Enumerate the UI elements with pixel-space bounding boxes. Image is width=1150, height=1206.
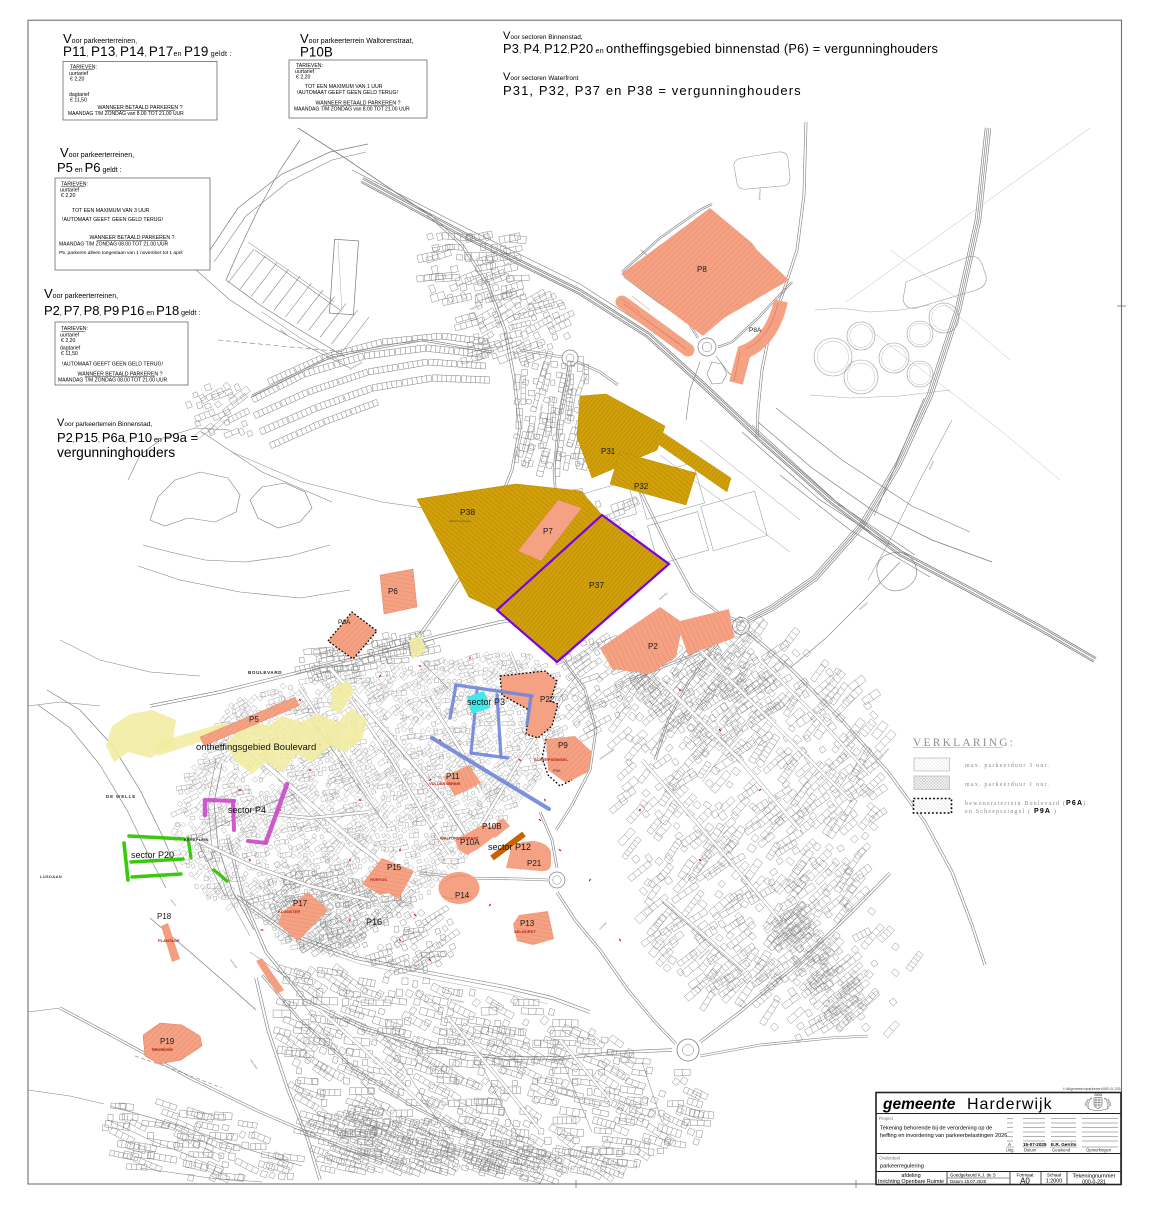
svg-text:P8: P8 <box>697 265 707 274</box>
svg-text:en Scheepssingel ( P9A ): en Scheepssingel ( P9A ) <box>965 808 1057 815</box>
svg-text:P16: P16 <box>366 917 382 927</box>
svg-text:€ 2,20: € 2,20 <box>70 77 85 83</box>
svg-text:P31: P31 <box>601 447 616 456</box>
svg-text:sector P20: sector P20 <box>131 850 174 860</box>
svg-text:P10B: P10B <box>300 45 333 60</box>
svg-text:LUSDAAN: LUSDAAN <box>40 875 62 879</box>
svg-text:P5: P5 <box>249 715 259 724</box>
svg-text:MAANDAG T/M ZONDAG van 8.00 TO: MAANDAG T/M ZONDAG van 8.00 TOT 21.00 UU… <box>294 107 410 113</box>
svg-text:TOT EEN MAXIMUM VAN 3 UUR: TOT EEN MAXIMUM VAN 3 UUR <box>72 208 150 214</box>
svg-text:P31, P32, P37 en P38 = vergun: P31, P32, P37 en P38 = vergunninghouders <box>503 83 802 98</box>
svg-text:ontheffingsgebied Boulevard: ontheffingsgebied Boulevard <box>196 742 316 753</box>
svg-text:sector P4: sector P4 <box>228 805 266 815</box>
svg-text:P11: P11 <box>446 772 460 781</box>
svg-text:parkeerregulering: parkeerregulering <box>880 1164 924 1170</box>
svg-text:Schaal: Schaal <box>1047 1173 1061 1178</box>
svg-text:!AUTOMAAT GEEFT GEEN GELD TERU: !AUTOMAAT GEEFT GEEN GELD TERUG! <box>297 90 398 96</box>
svg-text:000-0-231: 000-0-231 <box>1082 1180 1106 1186</box>
svg-text:SELHORST: SELHORST <box>514 929 536 934</box>
svg-text:Project: Project <box>879 1116 894 1121</box>
svg-text:WALTORENSTRAAT: WALTORENSTRAAT <box>440 836 479 841</box>
svg-text:€ 2,20: € 2,20 <box>61 338 76 344</box>
svg-text:SCHEEPSSINGEL: SCHEEPSSINGEL <box>534 757 569 762</box>
svg-text:Onderdeel: Onderdeel <box>879 1156 900 1161</box>
svg-text:Waterfrontgarage: Waterfrontgarage <box>449 519 471 523</box>
svg-text:P9: P9 <box>558 741 568 750</box>
svg-text:P17: P17 <box>293 899 308 908</box>
svg-text:Tekening behorende bij de vero: Tekening behorende bij de verordening op… <box>880 1126 992 1132</box>
svg-text:P21: P21 <box>527 859 542 868</box>
svg-text:P38: P38 <box>460 507 475 517</box>
svg-text:MAANDAG T/M ZONDAG 08.00 TOT: MAANDAG T/M ZONDAG 08.00 TOT 21.00 UUR <box>58 378 167 384</box>
svg-text:KERKPLEIN: KERKPLEIN <box>184 838 209 842</box>
svg-text:t:\Algemeen\parkeren\000-0-231: t:\Algemeen\parkeren\000-0-231 <box>1063 1086 1121 1091</box>
svg-text:!AUTOMAAT GEEFT GEEN GELD TERU: !AUTOMAAT GEEFT GEEN GELD TERUG! <box>62 362 163 368</box>
svg-text:!AUTOMAAT GEEFT GEEN GELD TERU: !AUTOMAAT GEEFT GEEN GELD TERUG! <box>62 217 163 223</box>
svg-text:P18: P18 <box>157 912 172 921</box>
svg-text:P5, parkeren alleen toegestaan: P5, parkeren alleen toegestaan van 1 nov… <box>59 250 182 256</box>
svg-text:Harderwijk: Harderwijk <box>967 1096 1053 1113</box>
svg-text:P8A: P8A <box>749 327 762 334</box>
svg-text:PLANTAGE: PLANTAGE <box>158 938 180 943</box>
svg-text:P2: P2 <box>648 642 658 651</box>
svg-text:€ 2,20: € 2,20 <box>61 193 76 199</box>
svg-text:P6: P6 <box>388 587 398 596</box>
svg-text:Getekend: Getekend <box>1052 1148 1071 1153</box>
svg-text:max. parkeerduur 1 uur.: max. parkeerduur 1 uur. <box>965 782 1050 788</box>
svg-text:Inrichting Openbare Ruimte: Inrichting Openbare Ruimte <box>878 1179 944 1185</box>
svg-text:€ 11,50: € 11,50 <box>70 98 87 104</box>
svg-text:VULDERSBRINK: VULDERSBRINK <box>429 781 461 786</box>
svg-text:1:2000: 1:2000 <box>1046 1179 1063 1185</box>
svg-text:P6A: P6A <box>338 619 351 626</box>
svg-text:P10B: P10B <box>482 822 502 831</box>
svg-text:bewonersterrein Boulevard (P: bewonersterrein Boulevard (P6A). <box>965 800 1089 807</box>
svg-text:P22: P22 <box>540 695 555 704</box>
svg-text:Datum 15.07.2025: Datum 15.07.2025 <box>950 1179 987 1184</box>
svg-text:max. parkeerduur 3 uur.: max. parkeerduur 3 uur. <box>965 763 1050 769</box>
svg-text:P9A: P9A <box>553 768 561 773</box>
svg-text:Opmerkingen: Opmerkingen <box>1086 1148 1112 1153</box>
svg-text:P14: P14 <box>455 891 470 900</box>
svg-text:BOULEVARD: BOULEVARD <box>248 670 282 675</box>
svg-text:P32: P32 <box>634 482 649 491</box>
svg-text:P2, P7, P8, P9 P16 en P18: P2, P7, P8, P9 P16 en P18 geldt : <box>44 303 200 318</box>
svg-text:gemeente: gemeente <box>882 1096 956 1113</box>
svg-text:sector P3: sector P3 <box>467 697 505 707</box>
svg-text:P7: P7 <box>543 527 553 536</box>
svg-text:P19: P19 <box>160 1037 175 1046</box>
svg-text:KLOOSTER: KLOOSTER <box>278 909 300 914</box>
svg-text:MAANDAG T/M ZONDAG van 8.00 TO: MAANDAG T/M ZONDAG van 8.00 TOT 21.00 UU… <box>68 111 184 117</box>
svg-text:Uitg.: Uitg. <box>1006 1148 1015 1153</box>
svg-text:P15: P15 <box>387 863 402 872</box>
svg-text:A0: A0 <box>1020 1177 1030 1186</box>
svg-text:Datum: Datum <box>1024 1148 1037 1153</box>
svg-text:15-07-2025: 15-07-2025 <box>1023 1142 1047 1147</box>
svg-text:heffing en invordering van par: heffing en invordering van parkeerbelast… <box>880 1133 1007 1139</box>
svg-text:sector P12: sector P12 <box>488 842 531 852</box>
svg-text:DE WELLE: DE WELLE <box>106 794 136 799</box>
svg-text:P13: P13 <box>520 919 535 928</box>
svg-text:Goedgekeurd K.J. de S: Goedgekeurd K.J. de S <box>950 1173 996 1178</box>
svg-text:MAANDAG T/M ZONDAG 08.00 TOT: MAANDAG T/M ZONDAG 08.00 TOT 21.00 UUR <box>59 242 168 248</box>
svg-text:P37: P37 <box>589 580 604 590</box>
svg-text:€ 2,20: € 2,20 <box>296 75 311 81</box>
svg-text:vergunninghouders: vergunninghouders <box>57 445 175 460</box>
svg-text:Westeinde: Westeinde <box>152 1047 174 1052</box>
svg-text:€ 11,50: € 11,50 <box>61 351 78 357</box>
svg-text:HORTUS: HORTUS <box>370 877 387 882</box>
svg-text:E.R. Gerrits: E.R. Gerrits <box>1051 1142 1077 1147</box>
